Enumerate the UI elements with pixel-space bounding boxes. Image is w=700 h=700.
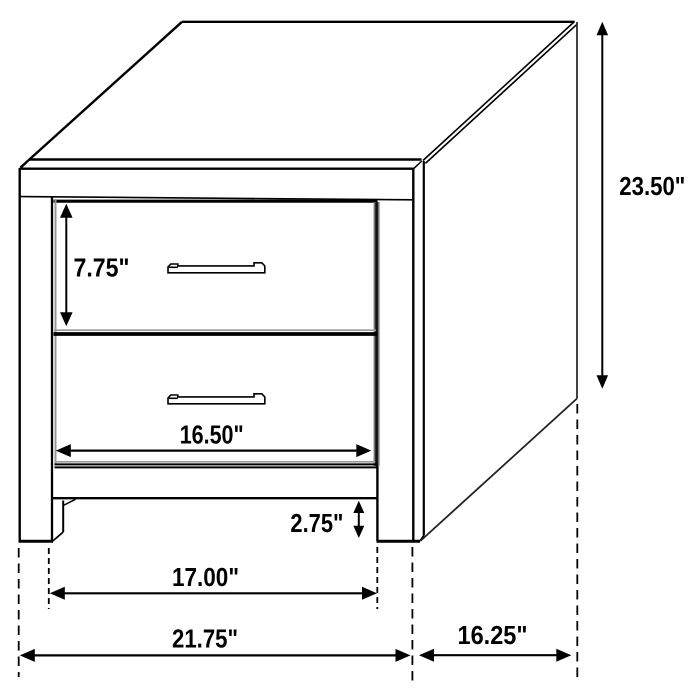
- svg-text:7.75": 7.75": [74, 253, 130, 283]
- svg-text:16.50": 16.50": [180, 420, 244, 450]
- svg-text:2.75": 2.75": [290, 508, 343, 538]
- svg-text:23.50": 23.50": [619, 171, 685, 201]
- svg-text:21.75": 21.75": [172, 624, 238, 654]
- svg-text:16.25": 16.25": [458, 620, 528, 650]
- svg-text:17.00": 17.00": [172, 562, 239, 592]
